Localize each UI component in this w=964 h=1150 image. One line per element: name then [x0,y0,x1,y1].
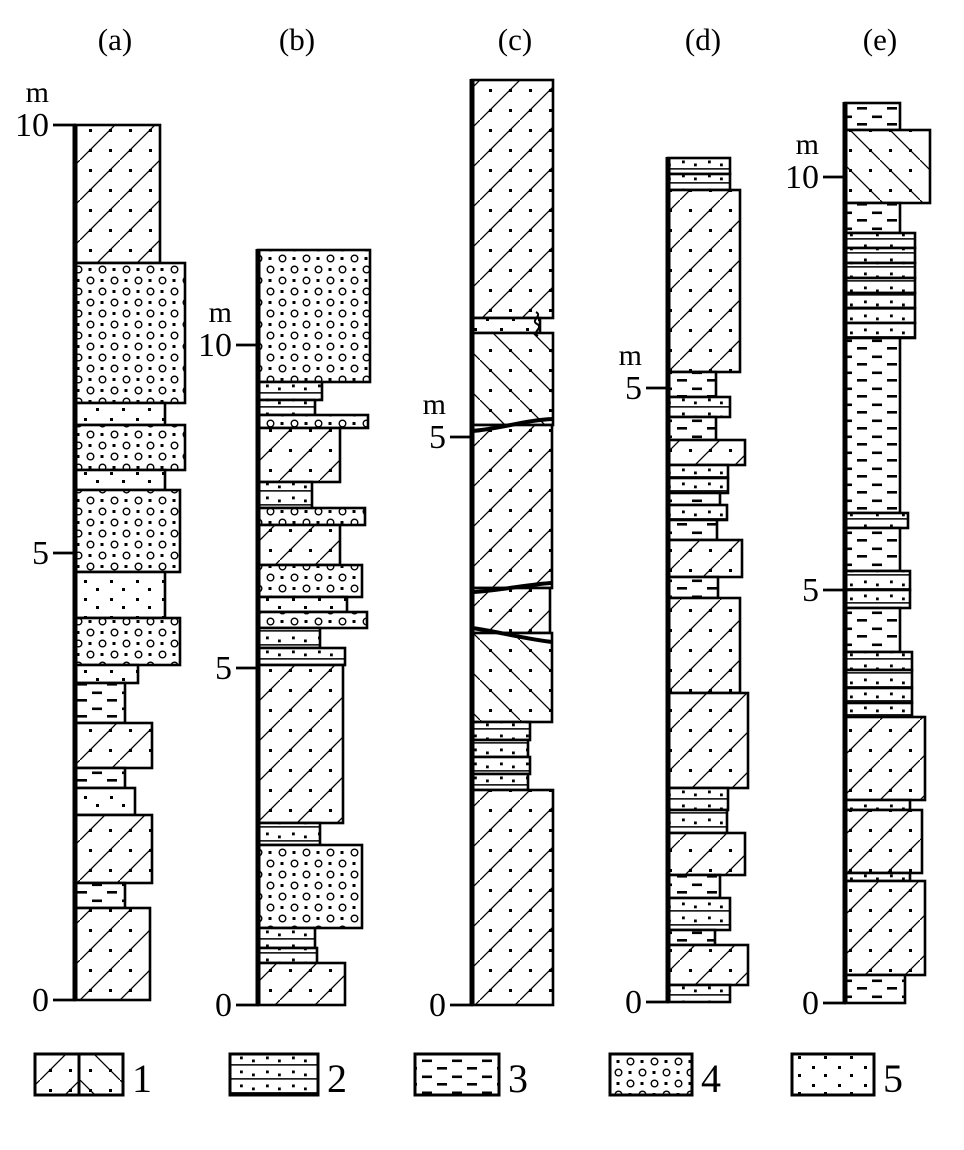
legend-swatch-sparse-dots [792,1054,874,1095]
layer-horizontal-lines-with-dots [668,810,727,833]
layer-circles-and-dots [258,845,362,928]
layer-horizontal-lines-with-dots [845,248,915,263]
layer-diagonal-lines-with-dots-right [75,125,160,263]
layer-sparse-dots [258,597,347,612]
layer-diagonal-lines-with-dots-right [258,665,343,823]
layer-diagonal-lines-with-dots-right [668,833,745,875]
layer-horizontal-lines-with-dots [845,263,915,278]
layer-diagonal-lines-with-dots-right [668,945,748,985]
layer-horizontal-lines-with-dots [668,898,730,930]
scale-tick-label: 0 [215,987,232,1024]
layer-circles-and-dots [75,490,180,572]
layer-circles-and-dots [258,250,370,382]
legend-number: 2 [327,1056,347,1101]
scale-tick-label: 0 [625,984,642,1021]
layer-circles-and-dots [75,618,180,665]
layer-horizontal-lines-with-dots [668,478,728,493]
legend-number: 3 [508,1056,528,1101]
layer-diagonal-lines-with-dots-right [75,723,152,768]
unit-label-b: m [209,296,232,329]
figure-page: (a)m1050(b)m1050(c)m50(d)m50(e)m10501234… [0,0,964,1150]
layer-circles-and-dots [75,425,185,470]
strat-diagram: (a)m1050(b)m1050(c)m50(d)m50(e)m10501234… [0,0,964,1150]
layer-horizontal-lines-with-dots [472,757,530,774]
layer-horizontal-lines-with-dots [258,928,315,948]
legend-item-2: 2 [230,1054,347,1101]
layer-circles-and-dots [258,415,368,428]
layer-diagonal-lines-with-dots-right [258,963,345,1005]
scale-tick-label: 0 [32,982,49,1019]
layer-diagonal-lines-with-dots-right [75,908,150,1000]
layer-diagonal-lines-with-dots-right [668,440,745,465]
column-title-d: (d) [685,22,721,57]
scale-tick-label: 5 [625,370,642,407]
layer-horizontal-lines-with-dots [668,788,728,810]
layer-horizontal-lines-with-dots [845,233,915,248]
legend-number: 4 [701,1056,721,1101]
layer-horizontal-lines-with-dots [845,278,915,293]
layer-diagonal-lines-with-dots-right [845,810,922,873]
layer-short-dashes [845,103,900,130]
layer-horizontal-lines-with-dots [258,628,320,648]
layer-short-dashes [668,577,718,598]
scale-tick-label: 0 [802,985,819,1022]
layer-diagonal-lines-with-dots-right [472,790,553,1005]
layer-horizontal-lines-with-dots [845,293,915,308]
layer-horizontal-lines-with-dots [845,590,910,608]
layer-short-dashes [668,930,715,945]
layer-horizontal-lines-with-dots [668,158,730,174]
column-title-c: (c) [498,22,532,57]
layer-diagonal-lines-with-dots-right [668,540,742,577]
legend-item-4: 4 [610,1054,721,1101]
layer-sparse-dots [75,470,165,490]
layer-diagonal-lines-with-dots-right [258,525,340,565]
scale-tick-label: 10 [15,107,49,144]
layer-horizontal-lines-with-dots [258,648,345,665]
layer-sparse-dots [75,665,138,683]
scale-tick-label: 5 [802,572,819,609]
unit-label-a: m [26,76,49,109]
layer-circles-and-dots [258,565,362,597]
layer-horizontal-lines-with-dots [472,740,528,757]
legend-item-1: 1 [35,1054,152,1101]
layer-sparse-dots [75,403,165,425]
layer-short-dashes [75,768,125,788]
layer-short-dashes [845,528,900,571]
layer-diagonal-lines-with-dots-right [668,598,740,693]
layer-short-dashes [668,520,717,540]
scale-tick-label: 10 [198,327,232,364]
scale-tick-label: 10 [785,159,819,196]
layer-sparse-dots [472,318,540,333]
layer-horizontal-lines-with-dots [258,948,317,963]
layer-diagonal-lines-with-dots-right [668,190,740,372]
layer-horizontal-lines-with-dots [668,985,730,1002]
layer-short-dashes [75,683,125,723]
unit-label-c: m [423,388,446,421]
layer-short-dashes [75,883,125,908]
layer-short-dashes [668,875,720,898]
layer-horizontal-lines-with-dots [845,670,912,688]
layer-horizontal-lines-with-dots [845,513,908,528]
scale-tick-label: 5 [32,535,49,572]
layer-diagonal-lines-with-dots-right [472,80,553,318]
layer-diagonal-lines-with-dots-right [472,425,552,588]
layer-horizontal-lines-with-dots [845,703,912,717]
layer-horizontal-lines-with-dots [845,688,912,703]
layer-horizontal-lines-with-dots [845,800,910,810]
layer-horizontal-lines-with-dots [258,482,312,508]
layer-horizontal-lines-with-dots [668,505,727,520]
unit-label-d: m [619,339,642,372]
column-title-a: (a) [98,22,132,57]
legend-swatch-crossbed-left [79,1054,123,1095]
layer-horizontal-lines-with-dots [845,571,910,590]
legend-swatch-short-dashes [415,1054,499,1095]
layer-short-dashes [668,417,716,440]
layer-circles-and-dots [75,263,185,403]
layer-horizontal-lines-with-dots [668,174,730,190]
legend-item-3: 3 [415,1054,528,1101]
layer-horizontal-lines-with-dots [472,722,530,740]
layer-horizontal-lines-with-dots [845,308,915,323]
unit-label-e: m [796,128,819,161]
layer-circles-and-dots [258,612,367,628]
layer-diagonal-lines-with-dots-right [845,881,925,975]
layer-sparse-dots [75,572,165,618]
layer-horizontal-lines-with-dots [668,465,728,478]
layer-diagonal-lines-with-dots-right [845,717,925,800]
scale-tick-label: 5 [429,419,446,456]
legend-item-5: 5 [792,1054,903,1101]
layer-horizontal-lines-with-dots [668,397,730,417]
column-title-b: (b) [279,22,315,57]
layer-sparse-dots [75,788,135,815]
layer-short-dashes [845,608,900,652]
layer-horizontal-lines-with-dots [258,400,315,415]
layer-short-dashes [845,203,900,233]
layer-horizontal-lines-with-dots [258,823,320,845]
layer-diagonal-lines-with-dots-left [845,130,930,203]
layer-circles-and-dots [258,508,365,525]
scale-tick-label: 5 [215,650,232,687]
layer-horizontal-lines-with-dots [845,323,915,338]
layer-diagonal-lines-with-dots-right [258,428,340,482]
layer-short-dashes [668,493,720,505]
layer-diagonal-lines-with-dots-right [472,588,550,633]
column-title-e: (e) [863,22,897,57]
legend-number: 1 [132,1056,152,1101]
legend-swatch-circles-and-dots [610,1054,692,1095]
layer-diagonal-lines-with-dots-right [668,693,748,788]
layer-short-dashes [845,338,900,513]
layer-horizontal-lines-with-dots [258,382,322,400]
legend-swatch-crossbed-right [35,1054,79,1095]
legend-number: 5 [883,1056,903,1101]
layer-diagonal-lines-with-dots-left [472,333,553,425]
layer-horizontal-lines-with-dots [845,652,912,670]
layer-diagonal-lines-with-dots-left [472,633,552,722]
scale-tick-label: 0 [429,987,446,1024]
layer-short-dashes [845,975,905,1003]
layer-diagonal-lines-with-dots-right [75,815,152,883]
layer-horizontal-lines-with-dots [472,774,528,790]
layer-short-dashes [668,372,716,397]
legend-swatch-horizontal-lines-with-dots [230,1054,318,1095]
